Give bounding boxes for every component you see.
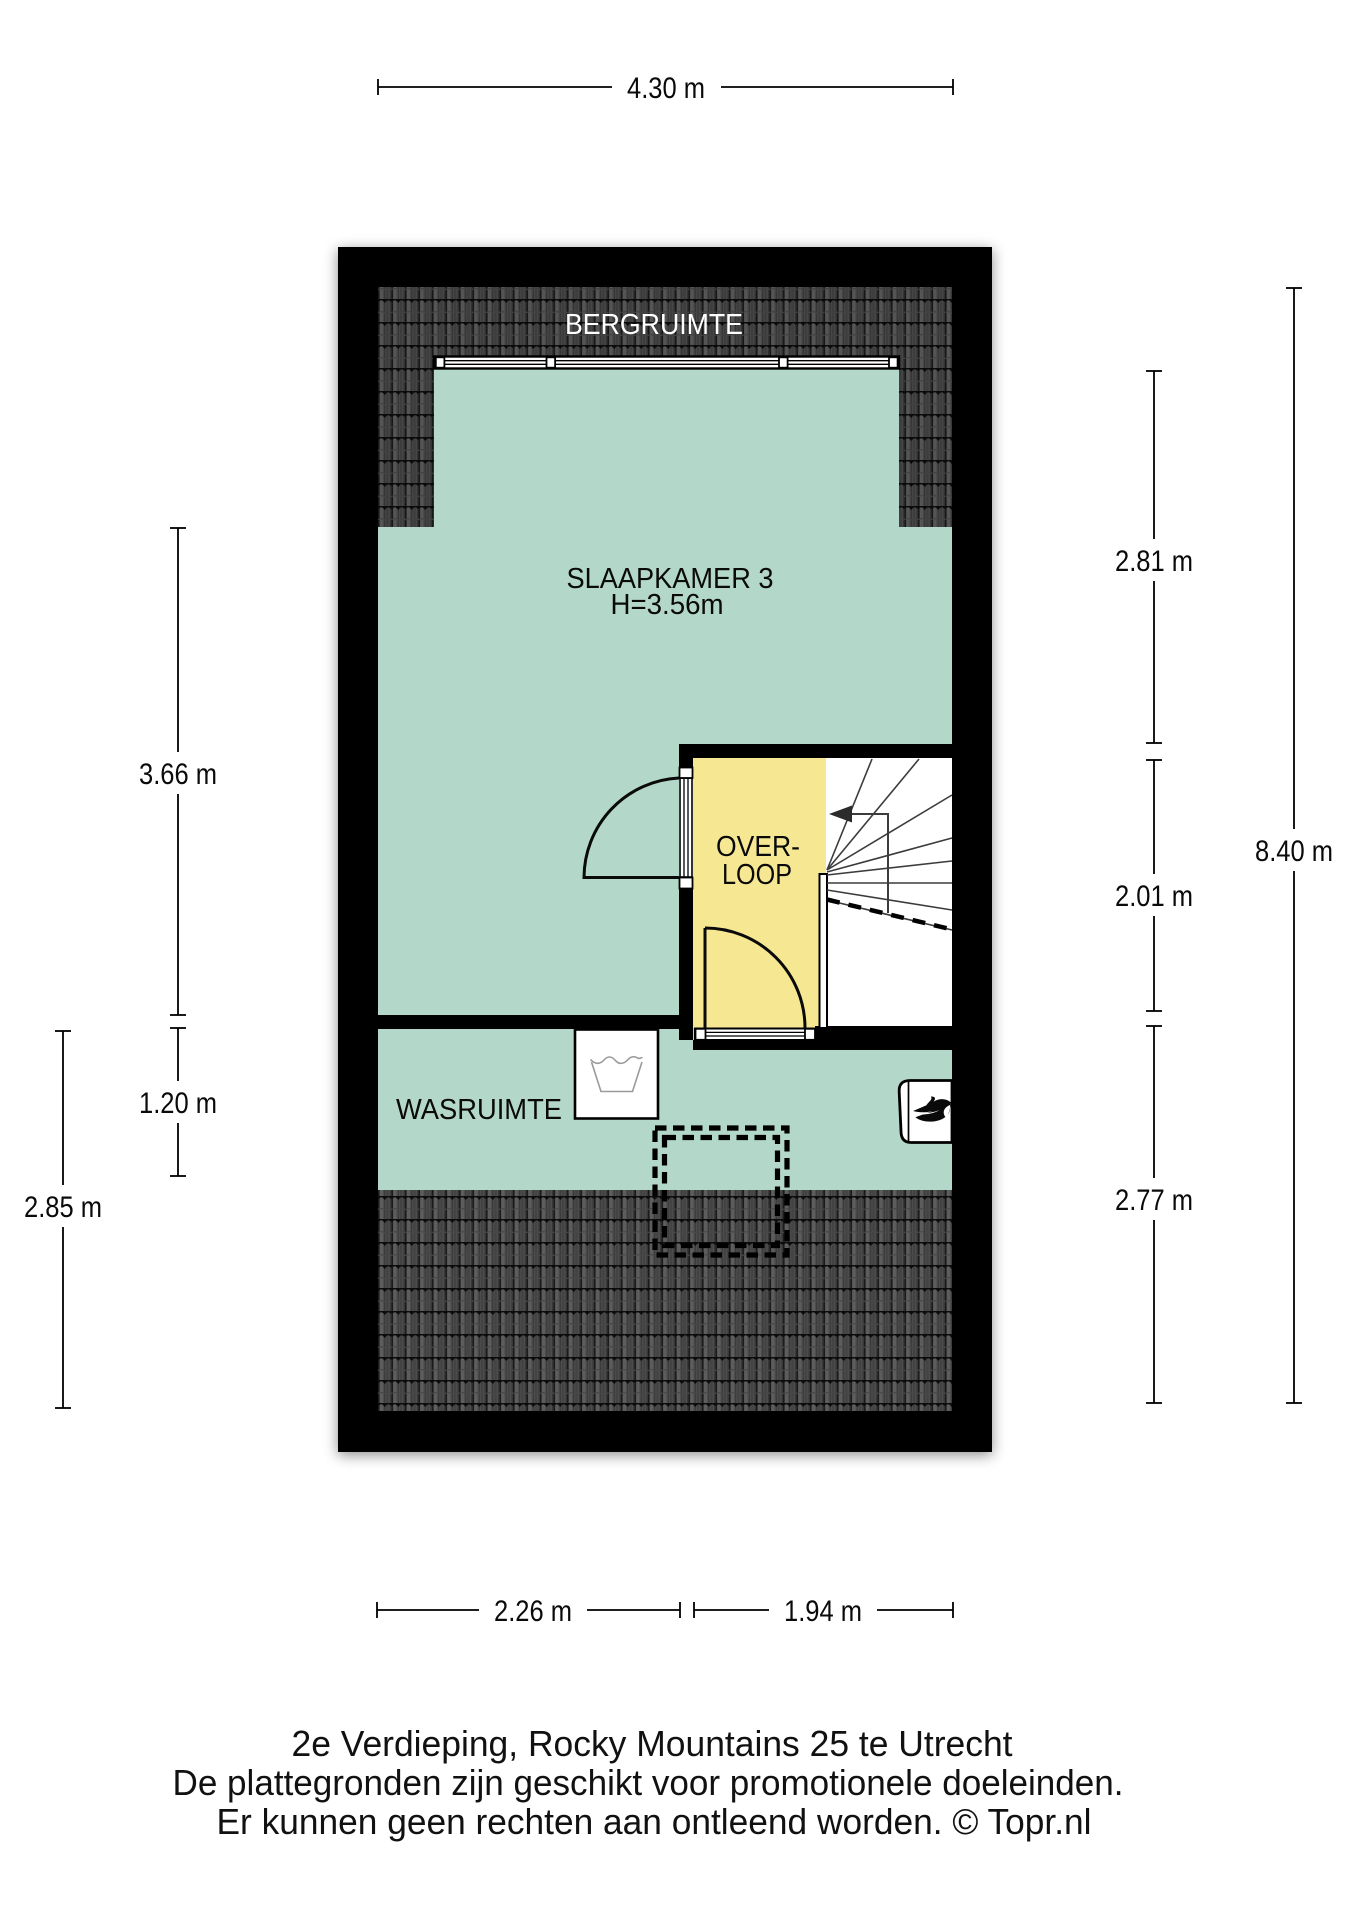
svg-text:2.77 m: 2.77 m [1115,1184,1193,1217]
svg-text:De plattegronden zijn geschikt: De plattegronden zijn geschikt voor prom… [173,1763,1124,1803]
svg-text:2.26 m: 2.26 m [494,1595,572,1628]
svg-text:BERGRUIMTE: BERGRUIMTE [565,309,743,341]
svg-text:2.85 m: 2.85 m [24,1191,102,1224]
svg-text:2e Verdieping, Rocky Mountains: 2e Verdieping, Rocky Mountains 25 te Utr… [292,1724,1013,1764]
svg-text:3.66 m: 3.66 m [139,758,217,791]
svg-text:8.40 m: 8.40 m [1255,835,1333,868]
svg-text:Er kunnen geen rechten aan ont: Er kunnen geen rechten aan ontleend word… [217,1802,1092,1842]
svg-text:H=3.56m: H=3.56m [611,589,724,621]
svg-text:4.30 m: 4.30 m [627,72,705,105]
svg-text:LOOP: LOOP [722,859,792,891]
svg-text:2.81 m: 2.81 m [1115,545,1193,578]
svg-text:2.01 m: 2.01 m [1115,880,1193,913]
svg-text:1.20 m: 1.20 m [139,1087,217,1120]
svg-text:WASRUIMTE: WASRUIMTE [396,1094,562,1126]
svg-text:1.94 m: 1.94 m [784,1595,862,1628]
